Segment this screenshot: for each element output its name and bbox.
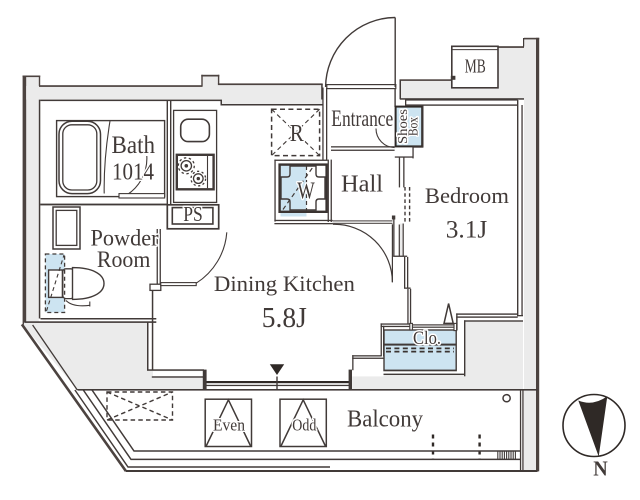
svg-text:3.1J: 3.1J xyxy=(446,216,488,243)
svg-text:R: R xyxy=(290,121,304,147)
svg-text:N: N xyxy=(593,457,608,481)
svg-text:Entrance: Entrance xyxy=(331,106,393,131)
svg-text:Box: Box xyxy=(405,117,420,136)
svg-text:Clo.: Clo. xyxy=(413,329,441,349)
svg-text:PS: PS xyxy=(183,202,203,226)
svg-text:Room: Room xyxy=(97,247,151,272)
svg-text:MB: MB xyxy=(465,56,486,77)
svg-text:Dining Kitchen: Dining Kitchen xyxy=(214,271,355,296)
svg-text:Odd: Odd xyxy=(292,415,317,434)
svg-text:Hall: Hall xyxy=(341,172,383,198)
svg-text:Bath: Bath xyxy=(112,132,156,159)
svg-text:Bedroom: Bedroom xyxy=(425,183,509,208)
svg-text:5.8J: 5.8J xyxy=(262,303,307,334)
svg-text:Even: Even xyxy=(213,415,245,434)
svg-text:Balcony: Balcony xyxy=(347,407,423,433)
svg-text:W: W xyxy=(297,178,315,204)
svg-text:1014: 1014 xyxy=(112,159,154,185)
